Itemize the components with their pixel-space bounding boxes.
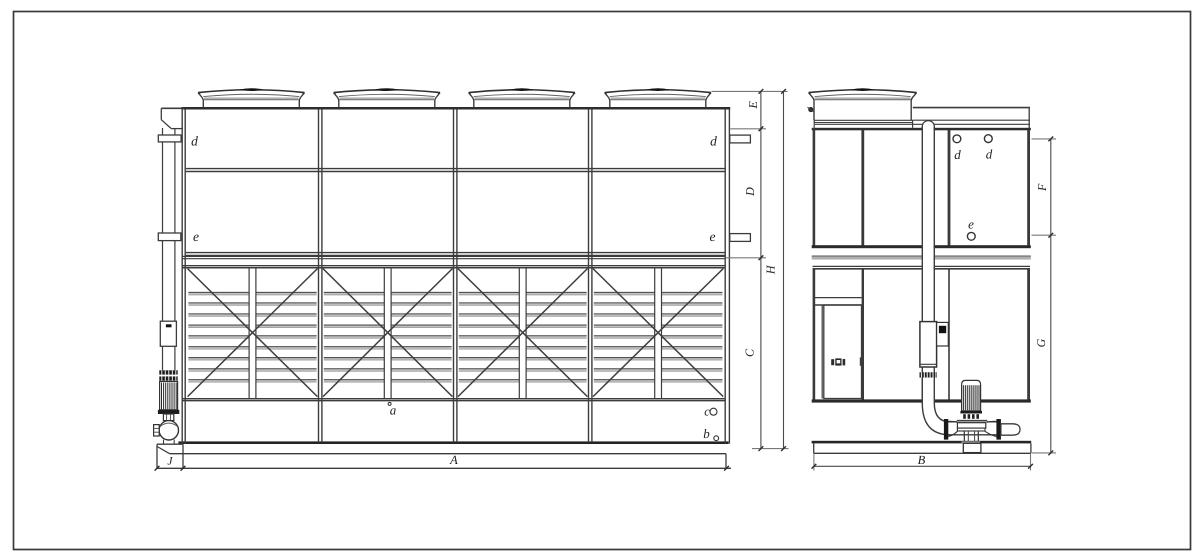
svg-text:A: A xyxy=(449,453,458,467)
svg-text:C: C xyxy=(743,348,757,357)
svg-text:F: F xyxy=(1035,183,1049,192)
svg-text:B: B xyxy=(918,453,926,467)
svg-text:H: H xyxy=(764,264,778,275)
svg-text:e: e xyxy=(968,217,974,232)
svg-text:d: d xyxy=(986,147,993,162)
svg-text:c: c xyxy=(704,404,710,418)
svg-text:d: d xyxy=(954,147,961,162)
svg-text:J: J xyxy=(167,456,173,468)
svg-text:D: D xyxy=(743,187,757,197)
svg-text:d: d xyxy=(191,134,198,149)
svg-text:E: E xyxy=(746,100,760,109)
svg-text:e: e xyxy=(710,229,716,244)
svg-text:d: d xyxy=(710,134,717,149)
svg-text:b: b xyxy=(703,426,710,441)
svg-text:G: G xyxy=(1034,338,1048,347)
svg-text:e: e xyxy=(193,229,199,244)
